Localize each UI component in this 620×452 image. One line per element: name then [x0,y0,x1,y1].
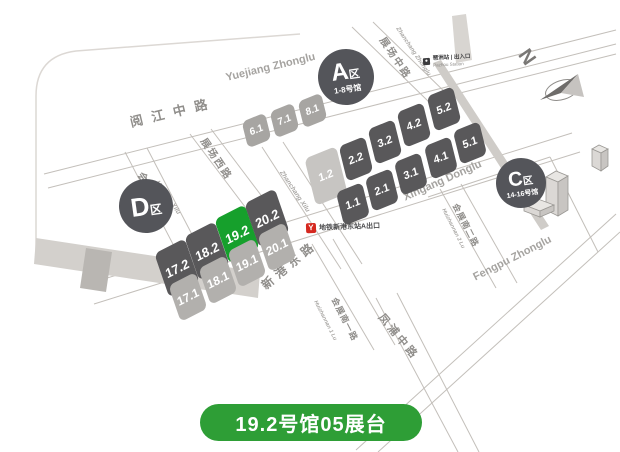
exhibition-map: 阅江中路 Yuejiang Zhonglu 展场中路 Zhanchang Zho… [0,0,620,452]
station-icon: ● [423,58,430,65]
compass-arrow-icon [540,74,584,104]
zone-c-suffix: 区 [522,176,533,187]
zone-d-letter: D [129,193,151,221]
guangzhou-metro-logo-icon: Y [306,223,316,233]
zone-a-suffix: 区 [348,69,360,81]
zone-c-letter: C [507,168,524,190]
station-marker: ● 琶洲站 | 出入口 Pazhou Station [423,54,471,68]
building-icon-small-tower [592,145,608,171]
zone-a-letter: A [330,60,351,86]
zone-d-suffix: 区 [149,203,163,217]
highlight-booth-badge: 19.2号馆05展台 [200,404,422,441]
zone-a-range: 1-8号馆 [334,84,362,96]
metro-exit-label: 地铁新港东站A出口 [319,221,380,233]
